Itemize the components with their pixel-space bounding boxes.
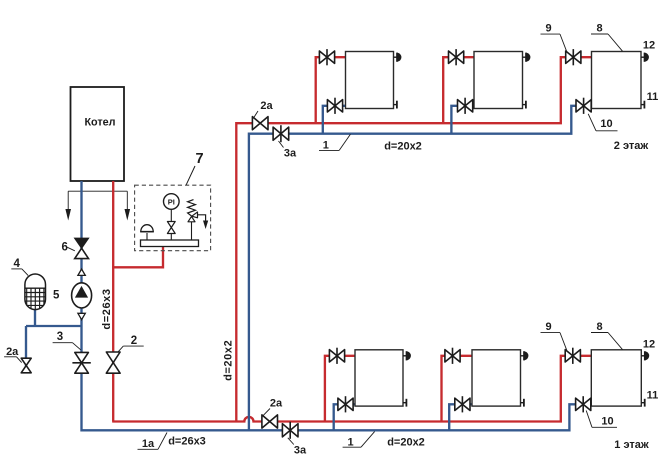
svg-text:2a: 2a [270,398,283,410]
svg-text:d=20x2: d=20x2 [387,437,425,449]
svg-text:4: 4 [13,258,20,270]
svg-text:5: 5 [53,290,60,302]
svg-text:11: 11 [647,91,659,103]
svg-text:1: 1 [347,437,353,449]
svg-text:3a: 3a [284,148,297,160]
svg-text:PI: PI [168,198,175,207]
svg-text:d=20x2: d=20x2 [223,340,235,381]
svg-text:Котел: Котел [84,117,115,129]
svg-text:1 этаж: 1 этаж [614,439,649,451]
svg-text:d=26x3: d=26x3 [101,288,113,329]
svg-text:12: 12 [643,40,655,52]
svg-text:8: 8 [596,23,602,35]
svg-text:2: 2 [131,335,137,347]
svg-text:1: 1 [323,140,329,152]
svg-text:d=20x2: d=20x2 [384,141,422,153]
svg-text:9: 9 [545,23,551,35]
svg-text:2 этаж: 2 этаж [614,140,649,152]
svg-text:3: 3 [57,331,63,343]
svg-text:10: 10 [601,416,613,428]
svg-text:6: 6 [61,242,67,254]
svg-text:7: 7 [195,151,203,167]
svg-text:3a: 3a [294,445,307,457]
svg-text:10: 10 [600,118,612,130]
svg-text:11: 11 [647,390,659,402]
svg-text:8: 8 [596,321,602,333]
svg-text:2a: 2a [260,100,273,112]
svg-text:9: 9 [545,321,551,333]
svg-text:12: 12 [643,339,655,351]
svg-text:d=26x3: d=26x3 [168,436,206,448]
svg-text:1a: 1a [142,438,155,450]
